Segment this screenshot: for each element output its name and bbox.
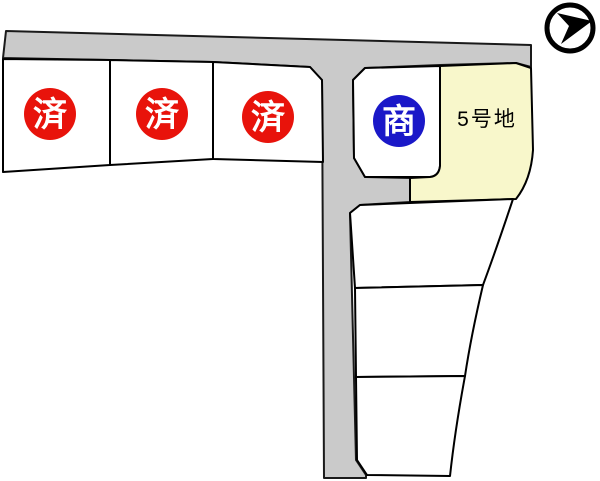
lot-8-parcel (356, 376, 465, 476)
lot-7-parcel (355, 285, 483, 377)
lot-1-sold-badge: 済 (24, 88, 76, 140)
lot-2-sold-badge: 済 (136, 88, 188, 140)
lot-map-canvas: 済 済 済 商 5号地 (0, 0, 600, 481)
lot-4-negotiating-badge: 商 (373, 95, 425, 147)
lot-map-svg: 済 済 済 商 5号地 (0, 0, 600, 481)
lot-4-badge-label: 商 (382, 103, 416, 141)
lot-3-sold-badge: 済 (242, 91, 294, 143)
lot-1-badge-label: 済 (33, 96, 68, 134)
lot-3-badge-label: 済 (251, 99, 286, 137)
lot-5-label: 5号地 (457, 108, 517, 131)
lot-2-badge-label: 済 (145, 96, 180, 134)
